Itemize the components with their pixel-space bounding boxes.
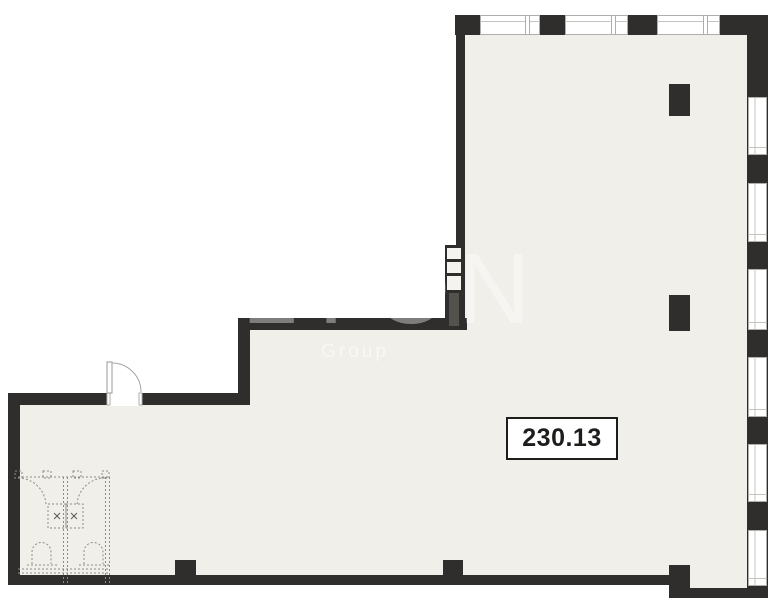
column-bottom-right bbox=[669, 565, 690, 598]
column-free-1 bbox=[669, 84, 690, 116]
window bbox=[481, 16, 540, 35]
window bbox=[749, 445, 767, 502]
wall-bottom-right bbox=[690, 588, 768, 598]
door-opening bbox=[108, 392, 141, 406]
shaft-opening-3 bbox=[447, 276, 461, 290]
area-label: 230.13 bbox=[506, 417, 618, 460]
wall-mid-vertical bbox=[238, 318, 250, 405]
shaft-opening-2 bbox=[447, 262, 461, 273]
window bbox=[749, 358, 767, 417]
window bbox=[749, 270, 767, 330]
floor-area bbox=[8, 15, 768, 598]
shaft-opening-1 bbox=[447, 248, 461, 259]
floor-plan-page: LYON Group 230.13 bbox=[0, 0, 784, 612]
column-bottom-1 bbox=[175, 560, 196, 577]
column-free-2 bbox=[669, 295, 690, 331]
door-jamb-left bbox=[107, 393, 110, 405]
area-value: 230.13 bbox=[522, 424, 601, 453]
window bbox=[658, 16, 720, 35]
window bbox=[749, 531, 767, 586]
door-swing-arc bbox=[112, 363, 141, 392]
shaft-duct bbox=[449, 293, 459, 326]
wall-left bbox=[8, 393, 20, 585]
door-leaf bbox=[107, 362, 112, 393]
window bbox=[749, 184, 767, 242]
wall-entry-right bbox=[141, 393, 250, 405]
door-jamb-right bbox=[139, 393, 142, 405]
window bbox=[566, 16, 628, 35]
entry-door bbox=[107, 362, 142, 406]
floor-plan-drawing bbox=[0, 0, 784, 612]
wall-entry-left bbox=[8, 393, 108, 405]
wall-bottom-main bbox=[8, 575, 690, 585]
windows-top bbox=[481, 16, 720, 35]
wall-mid-horizontal bbox=[238, 318, 467, 330]
column-bottom-2 bbox=[443, 560, 463, 577]
wall-left-upper bbox=[456, 15, 465, 246]
window bbox=[749, 98, 767, 155]
